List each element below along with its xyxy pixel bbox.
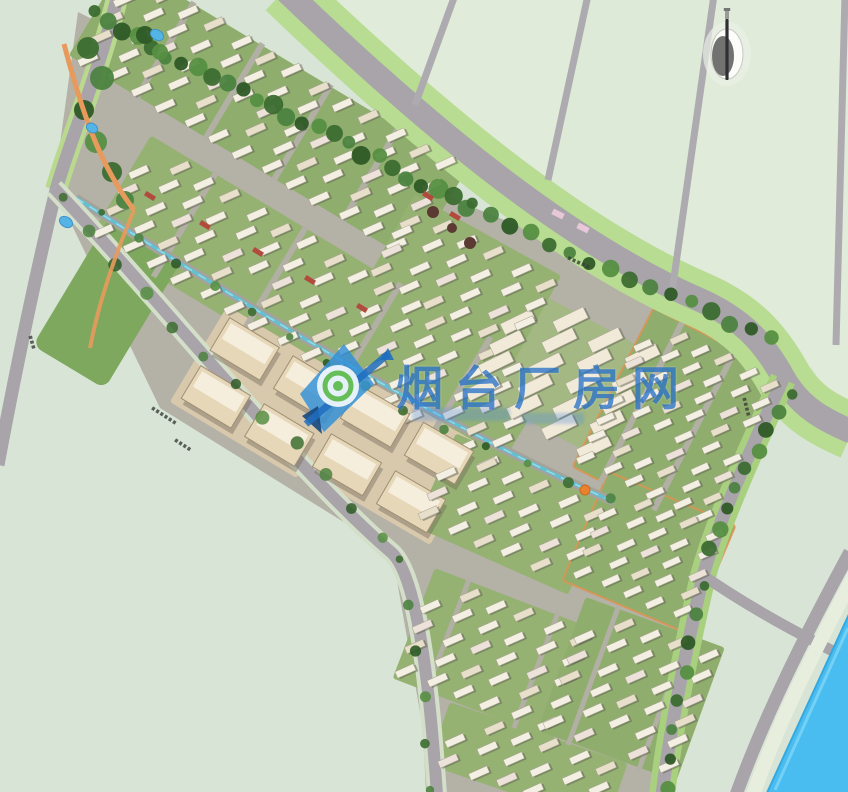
- site-plan-canvas: [0, 0, 848, 792]
- master-plan-screenshot: 烟台厂房网: [0, 0, 848, 792]
